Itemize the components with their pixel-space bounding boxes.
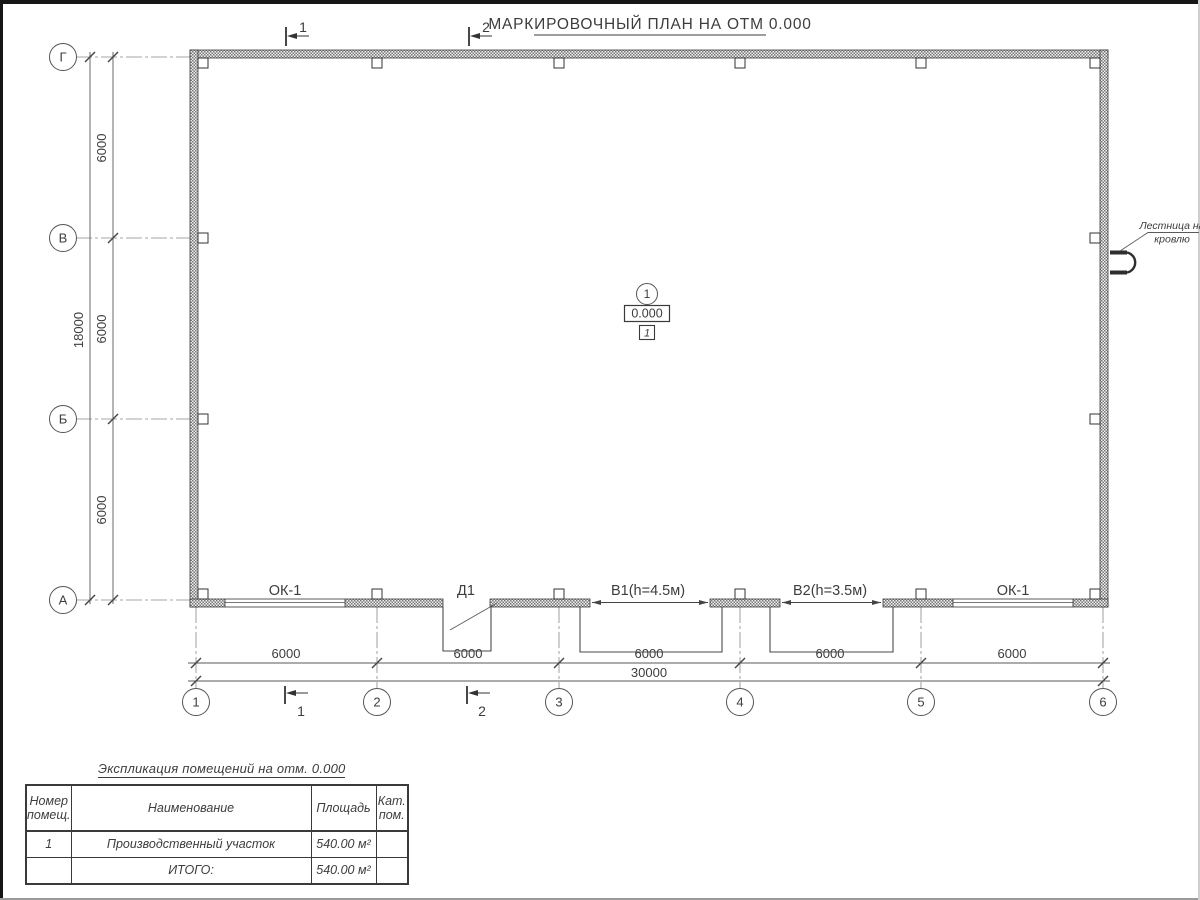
wall-top: [190, 50, 1108, 58]
roof-ladder-label-line1: Лестница на: [1138, 220, 1200, 232]
empty-cell: [26, 858, 71, 885]
wall-bottom-seg: [710, 599, 780, 607]
dim-left-total: 18000: [71, 312, 86, 348]
dim-left-bay: 6000: [94, 496, 109, 525]
roof-ladder-icon: [1110, 251, 1135, 275]
roof-ladder-label-line2: кровлю: [1154, 234, 1190, 246]
axis-col-label: 6: [1099, 695, 1106, 710]
axis-row-label: Г: [59, 50, 66, 65]
elevation-value: 0.000: [631, 307, 662, 321]
plan-title: МАРКИРОВОЧНЫЙ ПЛАН НА ОТМ 0.000: [488, 15, 811, 33]
axis-row-label: А: [59, 593, 68, 608]
total-label-cell: ИТОГО:: [71, 858, 311, 885]
axis-row-label: В: [59, 231, 68, 246]
section-mark-labels: 1 2 1 2: [297, 19, 490, 719]
dimension-lines: [90, 52, 1110, 681]
wall-bottom-seg: [190, 599, 225, 607]
label-door-d1: Д1: [457, 583, 475, 599]
dim-left-bay: 6000: [94, 134, 109, 163]
door-d1-recess: [443, 607, 491, 651]
table-row: 1 Производственный участок 540.00 м²: [26, 831, 408, 858]
col-header-number: Номер помещ.: [26, 785, 71, 831]
door-d1-leader: [450, 603, 497, 630]
drawing-page: { "page": { "title": "МАРКИРОВОЧНЫЙ ПЛАН…: [0, 0, 1200, 900]
axis-col-label: 4: [736, 695, 743, 710]
axis-row-label: Б: [59, 412, 68, 427]
window-left: [225, 599, 345, 607]
wall-bottom-seg: [490, 599, 590, 607]
label-gate-v2: В2(h=3.5м): [793, 583, 867, 599]
label-window-ok1-left: ОК-1: [269, 583, 302, 599]
axis-col-label: 5: [917, 695, 924, 710]
room-name-cell: Производственный участок: [71, 831, 311, 858]
col-header-category: Кат. пом.: [376, 785, 408, 831]
dim-bottom-bay: 6000: [998, 646, 1027, 661]
label-gate-v1: В1(h=4.5м): [611, 583, 685, 599]
wall-left: [190, 50, 198, 607]
axis-col-label: 2: [373, 695, 380, 710]
room-schedule-table: Номер помещ. Наименование Площадь Кат. п…: [25, 784, 409, 885]
room-area-cell: 540.00 м²: [311, 831, 376, 858]
dim-bottom-total: 30000: [631, 665, 667, 680]
dim-bottom-bay: 6000: [816, 646, 845, 661]
section-label-bottom-1: 1: [297, 703, 305, 719]
empty-cell: [376, 858, 408, 885]
wall-right: [1100, 50, 1108, 607]
room-number: 1: [644, 287, 651, 301]
floor-plan-canvas: МАРКИРОВОЧНЫЙ ПЛАН НА ОТМ 0.000: [0, 0, 1200, 760]
dim-bottom-bay: 6000: [454, 646, 483, 661]
label-window-ok1-right: ОК-1: [997, 583, 1030, 599]
dimension-values: 6000 6000 6000 6000 6000 30000 6000 6000…: [71, 134, 1026, 680]
table-total-row: ИТОГО: 540.00 м²: [26, 858, 408, 885]
room-marker: 1 0.000 1: [625, 284, 670, 340]
zone-number: 1: [644, 328, 650, 340]
dim-bottom-bay: 6000: [635, 646, 664, 661]
axis-bubble-labels-bottom: 1 2 3 4 5 6: [192, 695, 1106, 710]
wall-bottom-seg: [1073, 599, 1108, 607]
dimension-ticks: [85, 52, 1108, 686]
section-label-bottom-2: 2: [478, 703, 486, 719]
section-label-top-2: 2: [482, 19, 490, 35]
opening-labels: ОК-1 Д1 В1(h=4.5м) В2(h=3.5м) ОК-1: [269, 583, 1030, 599]
axis-col-label: 1: [192, 695, 199, 710]
col-header-name: Наименование: [71, 785, 311, 831]
room-category-cell: [376, 831, 408, 858]
total-area-cell: 540.00 м²: [311, 858, 376, 885]
room-number-cell: 1: [26, 831, 71, 858]
axis-bubbles-bottom: [183, 689, 1117, 716]
axis-lines: [76, 57, 1103, 688]
section-label-top-1: 1: [299, 19, 307, 35]
dim-bottom-bay: 6000: [272, 646, 301, 661]
col-header-area: Площадь: [311, 785, 376, 831]
window-right: [953, 599, 1073, 607]
dim-left-bay: 6000: [94, 315, 109, 344]
room-schedule-title: Экспликация помещений на отм. 0.000: [98, 761, 345, 778]
axis-bubble-labels-left: Г В Б А: [59, 50, 68, 608]
axis-col-label: 3: [555, 695, 562, 710]
wall-bottom-seg: [345, 599, 443, 607]
wall-bottom-seg: [883, 599, 953, 607]
